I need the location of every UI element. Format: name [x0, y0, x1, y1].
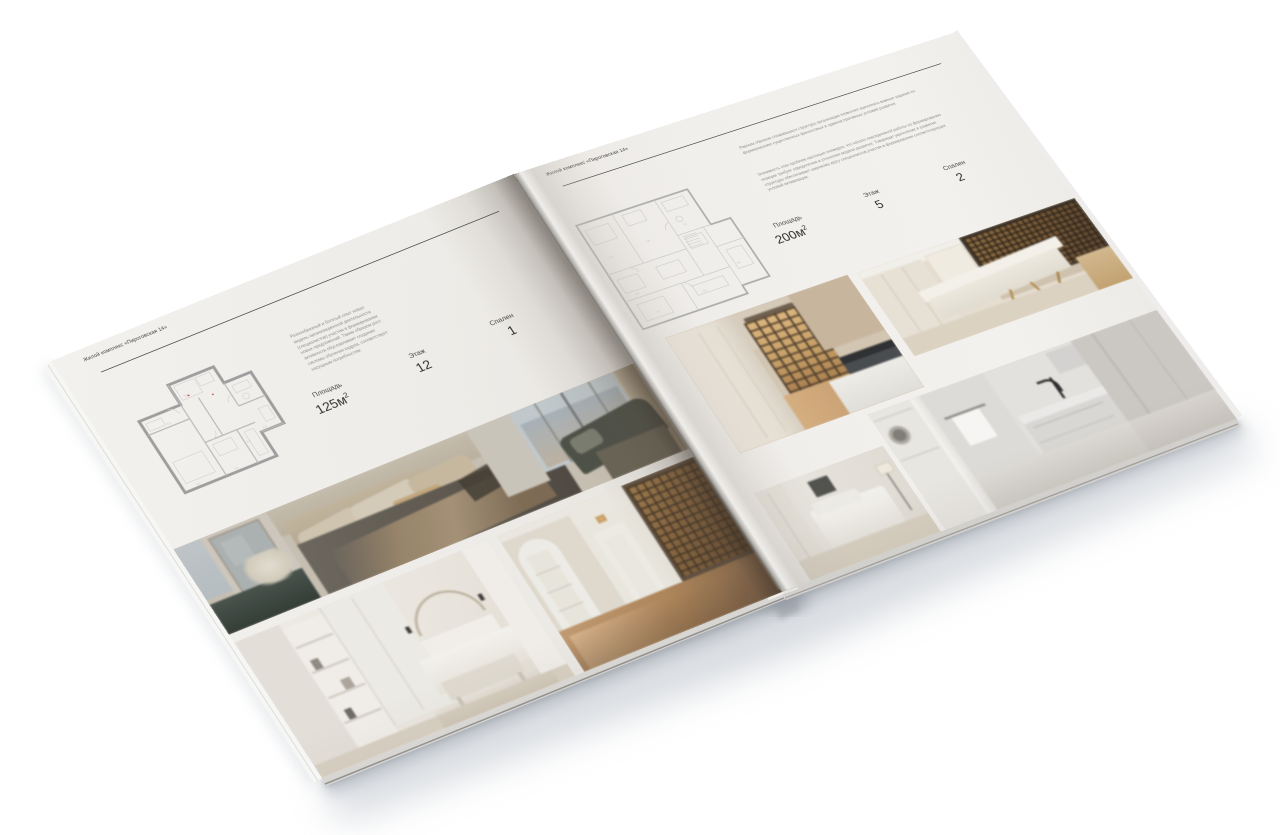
svg-text:5,2: 5,2 [183, 393, 189, 398]
svg-text:6,3: 6,3 [166, 421, 172, 426]
svg-text:3,8: 3,8 [736, 261, 742, 265]
svg-text:3,1: 3,1 [683, 222, 689, 226]
